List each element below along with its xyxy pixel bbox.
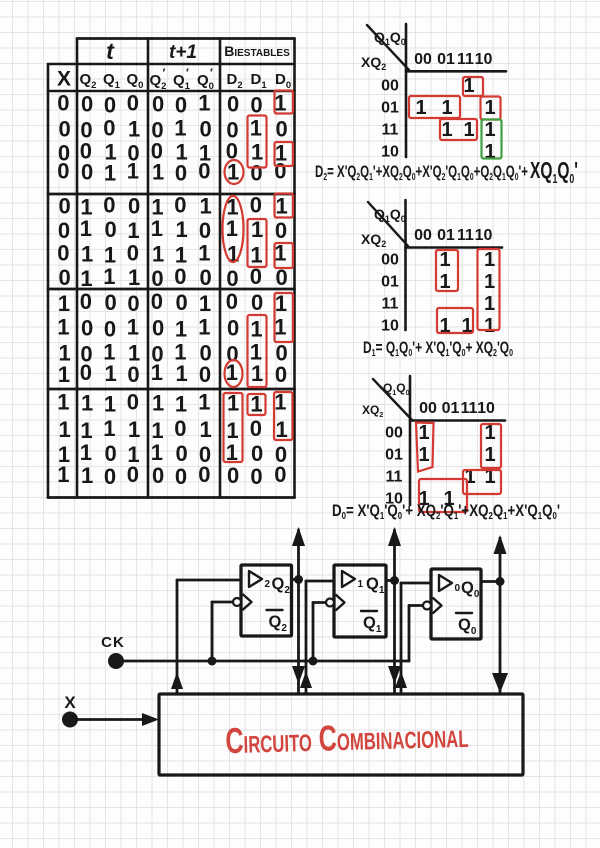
svg-text:0: 0 [127, 291, 139, 316]
svg-text:0: 0 [250, 92, 262, 117]
svg-text:1: 1 [199, 194, 211, 219]
svg-text:D2: D2 [227, 71, 243, 91]
svg-text:0: 0 [58, 265, 70, 290]
svg-text:1: 1 [463, 75, 474, 97]
svg-text:1: 1 [104, 361, 116, 386]
svg-text:1: 1 [484, 119, 495, 141]
svg-text:00: 00 [381, 252, 399, 269]
svg-text:1: 1 [175, 391, 187, 416]
svg-text:0: 0 [275, 362, 287, 387]
svg-text:Q0: Q0 [458, 616, 477, 637]
svg-text:0: 0 [175, 441, 187, 466]
svg-text:0: 0 [199, 218, 211, 243]
svg-text:1: 1 [275, 291, 287, 316]
svg-text:1: 1 [441, 97, 452, 119]
svg-text:11: 11 [457, 227, 474, 244]
svg-text:1: 1 [439, 249, 450, 271]
svg-text:1: 1 [251, 217, 263, 242]
svg-text:1: 1 [127, 218, 139, 243]
svg-text:X: X [64, 693, 76, 712]
svg-text:0: 0 [174, 264, 186, 289]
svg-text:01: 01 [437, 51, 455, 68]
svg-text:0: 0 [250, 160, 262, 185]
svg-text:1: 1 [58, 362, 70, 387]
svg-text:0: 0 [175, 160, 187, 185]
svg-text:0: 0 [274, 159, 286, 184]
svg-text:Q2′: Q2′ [150, 66, 167, 92]
svg-text:0: 0 [80, 289, 92, 314]
svg-text:1: 1 [128, 265, 140, 290]
svg-text:1: 1 [151, 360, 163, 385]
svg-text:0: 0 [250, 193, 262, 218]
svg-text:1: 1 [57, 390, 69, 415]
svg-text:1: 1 [103, 264, 115, 289]
svg-text:1: 1 [226, 418, 238, 443]
svg-text:10: 10 [381, 144, 399, 161]
svg-text:0: 0 [175, 290, 187, 315]
svg-text:1: 1 [484, 293, 495, 315]
svg-text:Q1Q0: Q1Q0 [374, 206, 406, 224]
svg-text:10: 10 [475, 227, 493, 244]
svg-text:0: 0 [127, 462, 139, 487]
svg-text:0: 0 [103, 116, 115, 141]
svg-text:1: 1 [441, 119, 452, 141]
svg-text:CK: CK [101, 634, 125, 651]
svg-text:0: 0 [127, 91, 139, 116]
svg-text:XQ2: XQ2 [361, 54, 386, 72]
svg-text:0: 0 [250, 464, 262, 489]
svg-text:1: 1 [198, 315, 210, 340]
svg-text:1: 1 [81, 391, 93, 416]
svg-text:1: 1 [152, 242, 164, 267]
svg-text:1: 1 [152, 391, 164, 416]
svg-text:1: 1 [174, 116, 186, 141]
svg-text:10: 10 [475, 51, 493, 68]
svg-text:1: 1 [103, 416, 115, 441]
svg-text:0: 0 [226, 266, 238, 291]
svg-text:1: 1 [80, 266, 92, 291]
svg-text:1: 1 [151, 216, 163, 241]
svg-text:1: 1 [58, 417, 70, 442]
svg-text:1: 1 [198, 91, 210, 116]
svg-text:1: 1 [439, 271, 450, 293]
svg-text:0: 0 [227, 316, 239, 341]
svg-text:1: 1 [484, 444, 495, 466]
svg-text:t: t [106, 38, 115, 64]
svg-text:0: 0 [57, 241, 69, 266]
svg-text:1: 1 [175, 217, 187, 242]
svg-text:0: 0 [199, 362, 211, 387]
svg-text:1: 1 [274, 315, 286, 340]
svg-text:0: 0 [57, 91, 69, 116]
svg-text:1: 1 [484, 141, 495, 163]
svg-text:1: 1 [151, 440, 163, 465]
svg-text:1: 1 [484, 249, 495, 271]
svg-text:XQ1​Q0​': XQ1​Q0​' [530, 157, 578, 186]
svg-text:0: 0 [58, 194, 70, 219]
svg-text:0: 0 [227, 463, 239, 488]
svg-text:1: 1 [175, 316, 187, 341]
svg-text:XQ2: XQ2 [362, 403, 383, 419]
svg-text:D2​= X'Q2​Q1​'+XQ2​Q0​+X'Q2​'Q: D2​= X'Q2​Q1​'+XQ2​Q0​+X'Q2​'Q1​Q0​+Q2​Q… [315, 162, 528, 183]
svg-text:0: 0 [104, 290, 116, 315]
svg-text:00: 00 [414, 51, 432, 68]
svg-text:1: 1 [81, 463, 93, 488]
svg-text:0: 0 [174, 416, 186, 441]
svg-text:Q1Q0: Q1Q0 [383, 381, 410, 397]
svg-text:D0​= X'Q1​'Q0​'+ XQ2​'Q1​'+XQ2: D0​= X'Q1​'Q0​'+ XQ2​'Q1​'+XQ2​Q1​+X'Q1​… [332, 501, 560, 522]
svg-text:1: 1 [127, 315, 139, 340]
svg-text:0: 0 [198, 462, 210, 487]
svg-text:1: 1 [484, 271, 495, 293]
svg-text:0: 0 [81, 316, 93, 341]
svg-text:X: X [57, 68, 71, 91]
svg-text:0: 0 [152, 92, 164, 117]
svg-text:1: 1 [484, 97, 495, 119]
svg-text:11: 11 [382, 122, 399, 139]
svg-text:1: 1 [104, 391, 116, 416]
svg-text:1: 1 [152, 160, 164, 185]
svg-text:0: 0 [226, 289, 238, 314]
svg-text:0: 0 [104, 464, 116, 489]
svg-text:10: 10 [381, 318, 399, 335]
svg-text:D0: D0 [275, 71, 291, 91]
svg-text:Q1: Q1 [366, 575, 385, 596]
svg-text:D1: D1 [251, 71, 268, 91]
svg-text:1: 1 [250, 316, 262, 341]
svg-text:0: 0 [199, 265, 211, 290]
svg-text:0: 0 [58, 117, 70, 142]
svg-text:Q1: Q1 [363, 614, 382, 635]
svg-text:0: 0 [250, 416, 262, 441]
svg-text:CIRCUITO COMBINACIONAL: CIRCUITO COMBINACIONAL [225, 714, 469, 761]
svg-text:1: 1 [81, 242, 93, 267]
svg-text:1: 1 [128, 417, 140, 442]
svg-text:00: 00 [414, 227, 432, 244]
svg-text:1: 1 [274, 91, 286, 116]
svg-text:0: 0 [174, 193, 186, 218]
svg-text:0: 0 [127, 362, 139, 387]
svg-text:01: 01 [442, 400, 460, 417]
svg-text:1: 1 [251, 361, 263, 386]
svg-text:Q1: Q1 [103, 71, 121, 91]
svg-text:0: 0 [227, 92, 239, 117]
svg-text:XQ2: XQ2 [361, 231, 386, 249]
svg-text:0: 0 [275, 218, 287, 243]
svg-text:1: 1 [127, 159, 139, 184]
svg-text:1: 1 [128, 117, 140, 142]
svg-text:1: 1 [275, 417, 287, 442]
svg-text:0: 0 [104, 316, 116, 341]
svg-text:01: 01 [381, 274, 399, 291]
svg-text:0: 0 [251, 441, 263, 466]
svg-text:1: 1 [104, 160, 116, 185]
svg-text:1: 1 [175, 361, 187, 386]
svg-text:0: 0 [175, 92, 187, 117]
svg-text:Q2: Q2 [272, 575, 291, 596]
svg-text:Q0′: Q0′ [197, 66, 214, 92]
svg-text:Q1Q0: Q1Q0 [374, 29, 406, 47]
svg-text:0: 0 [152, 316, 164, 341]
svg-text:11: 11 [457, 51, 474, 68]
svg-text:1: 1 [484, 315, 495, 337]
svg-text:11: 11 [461, 400, 478, 417]
svg-text:1: 1 [418, 444, 429, 466]
svg-text:Q2: Q2 [269, 613, 288, 634]
svg-text:0: 0 [127, 241, 139, 266]
svg-text:Q0: Q0 [461, 579, 480, 600]
svg-text:0: 0 [128, 194, 140, 219]
svg-text:10: 10 [477, 400, 495, 417]
svg-text:0: 0 [199, 117, 211, 142]
svg-text:1: 1 [415, 97, 426, 119]
svg-text:1: 1 [199, 291, 211, 316]
svg-text:D1​= Q1​Q0​'+ X'Q1​'Q0​+ XQ2​': D1​= Q1​Q0​'+ X'Q1​'Q0​+ XQ2​'Q0​ [363, 338, 513, 359]
svg-text:01: 01 [385, 447, 403, 464]
svg-text:1: 1 [463, 119, 474, 141]
svg-text:0: 0 [275, 117, 287, 142]
svg-text:BIESTABLES: BIESTABLES [224, 43, 290, 59]
svg-text:01: 01 [381, 100, 399, 117]
svg-text:1: 1 [418, 422, 429, 444]
svg-text:1: 1 [250, 116, 262, 141]
svg-text:Q0: Q0 [127, 71, 144, 91]
svg-text:Q1′: Q1′ [173, 66, 191, 92]
svg-text:0: 0 [104, 217, 116, 242]
svg-text:0: 0 [455, 583, 461, 594]
svg-text:0: 0 [274, 462, 286, 487]
svg-text:0: 0 [81, 160, 93, 185]
svg-text:0: 0 [103, 193, 115, 218]
svg-text:00: 00 [419, 400, 437, 417]
svg-text:0: 0 [104, 441, 116, 466]
svg-text:1: 1 [58, 291, 70, 316]
svg-text:1: 1 [151, 418, 163, 443]
svg-text:2: 2 [265, 579, 271, 590]
svg-text:0: 0 [58, 218, 70, 243]
svg-text:11: 11 [382, 296, 399, 313]
svg-text:t+1: t+1 [169, 42, 197, 63]
svg-text:1: 1 [57, 315, 69, 340]
svg-text:0: 0 [57, 159, 69, 184]
svg-text:0: 0 [175, 464, 187, 489]
svg-text:1: 1 [80, 440, 92, 465]
svg-text:1: 1 [275, 194, 287, 219]
svg-text:0: 0 [251, 290, 263, 315]
svg-text:00: 00 [381, 78, 399, 95]
svg-text:1: 1 [80, 418, 92, 443]
svg-text:11: 11 [386, 469, 403, 486]
svg-text:0: 0 [127, 390, 139, 415]
svg-text:0: 0 [152, 463, 164, 488]
svg-text:1: 1 [274, 390, 286, 415]
svg-text:1: 1 [226, 216, 238, 241]
svg-text:01: 01 [437, 227, 455, 244]
svg-text:0: 0 [198, 159, 210, 184]
svg-text:1: 1 [358, 579, 364, 590]
svg-text:1: 1 [198, 241, 210, 266]
svg-text:1: 1 [227, 391, 239, 416]
svg-text:00: 00 [385, 425, 403, 442]
svg-text:0: 0 [104, 92, 116, 117]
svg-text:0: 0 [151, 266, 163, 291]
svg-text:0: 0 [151, 289, 163, 314]
svg-text:1: 1 [199, 417, 211, 442]
svg-text:1: 1 [198, 390, 210, 415]
svg-text:1: 1 [80, 216, 92, 241]
svg-text:Q2: Q2 [80, 71, 97, 91]
svg-text:1: 1 [484, 422, 495, 444]
svg-text:0: 0 [81, 92, 93, 117]
svg-text:1: 1 [57, 462, 69, 487]
svg-text:0: 0 [80, 360, 92, 385]
svg-text:1: 1 [274, 241, 286, 266]
